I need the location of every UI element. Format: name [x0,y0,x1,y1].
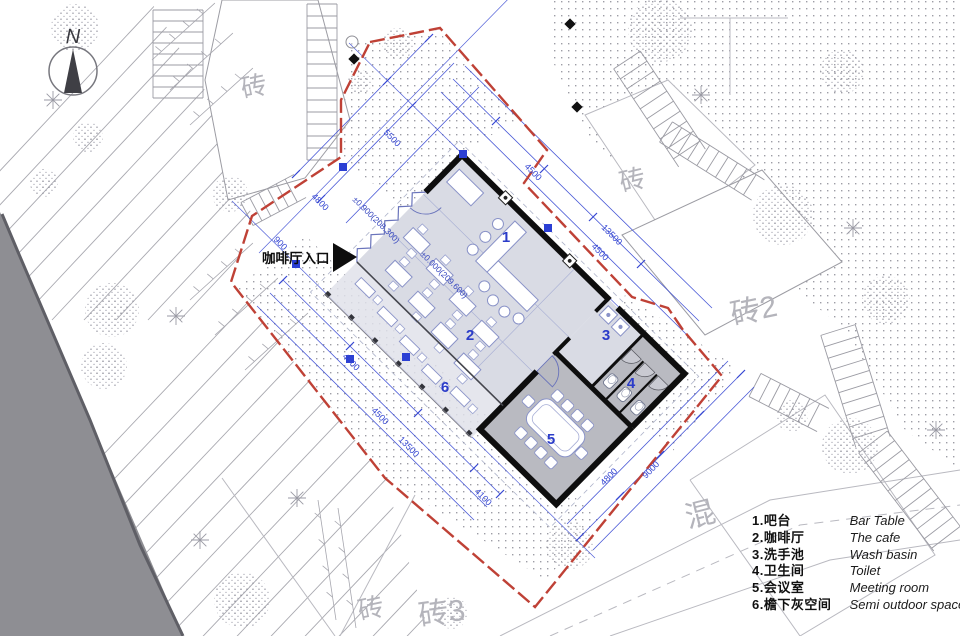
tree-inner [837,433,868,464]
tree-inner [93,355,118,380]
terrace-tick [155,46,161,51]
compass-needle [64,49,82,93]
terrace-tick [183,21,189,26]
terrace-tick [262,344,268,349]
stair-rung [285,179,297,202]
stair-rung [828,348,862,359]
legend-en-washbasin: Wash basin [840,547,918,562]
stair-rung [808,404,820,427]
room-label-meeting: 5 [547,431,555,448]
tree-inner [229,587,260,618]
legend-item-washbasin: 3.洗手池 Wash basin [752,547,960,564]
tree-inner [222,186,242,206]
label-brick-3: 砖3 [416,594,467,633]
entrance-label: 咖啡厅入口 [262,250,330,266]
tree-inner [38,177,53,192]
tree-inner [391,37,409,55]
stair-rung [835,370,869,381]
tree-inner [559,534,585,560]
dim-9000-se: 9000 [640,459,661,480]
terrace-tick [193,286,199,291]
tree-inner [644,14,679,49]
tree-inner [875,289,901,315]
room-label-cafe: 2 [466,327,474,344]
room-label-toilet: 4 [627,375,636,392]
dim-13500-ne: 13500 [600,222,625,247]
room-label-bar: 1 [502,229,510,246]
room-label-veranda: 6 [441,379,449,396]
terrace-tick [221,261,227,266]
terrace-tick [218,321,224,326]
terrace-tick [169,34,175,39]
legend-en-veranda: Semi outdoor space [840,597,960,612]
terrace-tick [173,76,179,81]
legend-item-cafe: 2.咖啡厅 The cafe [752,530,960,547]
room-label-washbasin: 3 [602,327,610,344]
legend-en-bar: Bar Table [840,513,905,528]
stair-rung [832,359,866,370]
road [0,212,183,636]
north-label: N [66,26,81,48]
legend-zh-toilet: 4.卫生间 [752,563,836,580]
legend-zh-cafe: 2.咖啡厅 [752,530,836,547]
legend-zh-meeting: 5.会议室 [752,580,836,597]
tree-inner [99,297,129,327]
site-plan-page: N 咖啡厅入口 1 2 3 4 5 6 5500 4500 13500 4500… [0,0,960,636]
dim-4800-se: 4800 [598,466,619,487]
tree-inner [355,77,368,90]
legend-en-meeting: Meeting room [840,580,929,595]
legend-zh-veranda: 6.檐下灰空间 [752,597,836,614]
dim-tick [737,370,745,378]
legend-item-veranda: 6.檐下灰空间 Semi outdoor space [752,597,960,614]
label-brick-c: 砖 [355,591,387,626]
legend-en-toilet: Toilet [840,563,881,578]
stair-rung [267,188,279,211]
tree-inner [769,201,802,234]
legend-zh-washbasin: 3.洗手池 [752,547,836,564]
legend-item-toilet: 4.卫生间 Toilet [752,563,960,580]
terrace-tick [248,356,254,361]
label-concrete: 混 [682,496,719,535]
dim-4500-ne2: 4500 [590,241,611,262]
dim-4800-nw: 4800 [310,191,331,212]
tree-inner [82,131,99,148]
legend-en-cafe: The cafe [840,530,901,545]
stair-rung [749,373,761,396]
tree-inner [785,409,803,427]
terrace-tick [193,111,199,116]
legend-zh-bar: 1.吧台 [752,513,836,530]
stair-rung [839,382,873,393]
legend-item-bar: 1.吧台 Bar Table [752,513,960,530]
stair-rung [842,393,876,404]
tree-inner [832,62,856,86]
stair-rung [769,384,781,407]
terrace-tick [207,274,213,279]
legend: 1.吧台 Bar Table 2.咖啡厅 The cafe 3.洗手池 Wash… [752,513,960,614]
contour-line [0,0,192,320]
terrace-tick [232,309,238,314]
stair-rung [759,378,771,401]
legend-item-meeting: 5.会议室 Meeting room [752,580,960,597]
stair-rung [846,405,880,416]
